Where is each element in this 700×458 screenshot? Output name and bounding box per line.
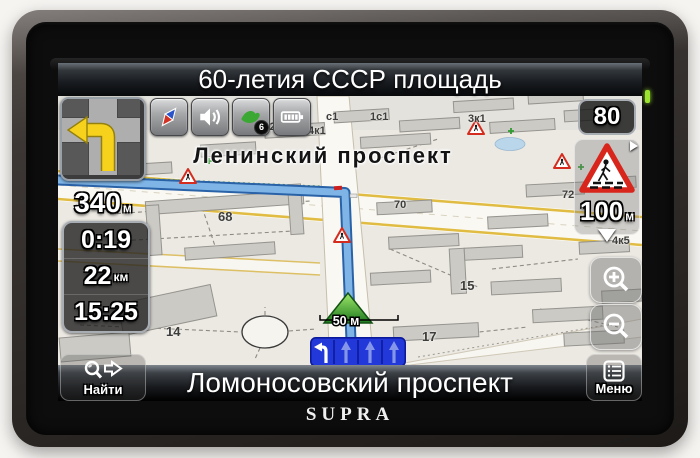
time-remaining: 0:19: [64, 223, 148, 258]
maneuver-distance: 340м: [58, 187, 148, 219]
power-led: [645, 90, 650, 103]
panel-collapse-arrow-icon[interactable]: [630, 141, 638, 151]
gps-count-badge: 6: [254, 120, 269, 135]
maneuver-distance-unit: м: [123, 201, 132, 215]
speaker-icon: [197, 104, 223, 130]
find-button-label: Найти: [84, 382, 123, 397]
top-bar: 60-летия СССР площадь: [58, 63, 642, 96]
distance-remaining-unit: км: [113, 270, 128, 284]
navigation-screen: 50 м 4к2 4к1 1с1 3к1 71 3 68 70 14 17 15…: [58, 63, 642, 401]
lane-arrows-icon: [310, 337, 406, 367]
trip-info-widget[interactable]: 0:19 22км 15:25: [62, 221, 150, 333]
status-toolbar: 6: [150, 98, 311, 136]
hazard-sign-widget: 100м: [574, 139, 640, 235]
zoom-out-icon: [600, 311, 632, 343]
hazard-direction-arrow-icon: [598, 229, 616, 242]
gps-button[interactable]: 6: [232, 98, 270, 136]
next-street-title: 60-летия СССР площадь: [198, 63, 502, 96]
search-arrow-icon: [82, 359, 124, 383]
car-distance-label: 50 м: [333, 314, 360, 328]
current-street-title: Ломоносовский проспект: [187, 365, 513, 401]
pond: [495, 138, 525, 151]
turn-left-icon: [62, 99, 140, 175]
photo-stage: SUPRA: [0, 0, 700, 458]
battery-icon: [279, 104, 305, 130]
next-turn-widget[interactable]: [60, 97, 146, 181]
compass-icon: [156, 104, 182, 130]
arrival-time: 15:25: [64, 294, 148, 330]
hazard-distance-value: 100: [580, 196, 623, 226]
hazard-distance-unit: м: [625, 209, 634, 223]
distance-remaining: 22км: [64, 258, 148, 294]
brand-logo: SUPRA: [0, 404, 700, 426]
lane-assist-panel: [310, 337, 406, 367]
find-button[interactable]: Найти: [60, 354, 146, 401]
roundabout: [242, 316, 288, 348]
pedestrian-crossing-sign-icon: [579, 143, 635, 195]
volume-button[interactable]: [191, 98, 229, 136]
maneuver-distance-value: 340: [74, 187, 121, 218]
menu-button[interactable]: Меню: [586, 354, 642, 401]
menu-button-label: Меню: [595, 381, 632, 396]
zoom-in-icon: [600, 264, 632, 296]
compass-button[interactable]: [150, 98, 188, 136]
zoom-in-button[interactable]: [590, 257, 642, 303]
hazard-distance: 100м: [580, 196, 634, 227]
zoom-out-button[interactable]: [590, 304, 642, 350]
menu-list-icon: [602, 360, 626, 382]
distance-remaining-value: 22: [84, 262, 112, 291]
speed-limit-widget: 80: [578, 99, 636, 135]
battery-button[interactable]: [273, 98, 311, 136]
